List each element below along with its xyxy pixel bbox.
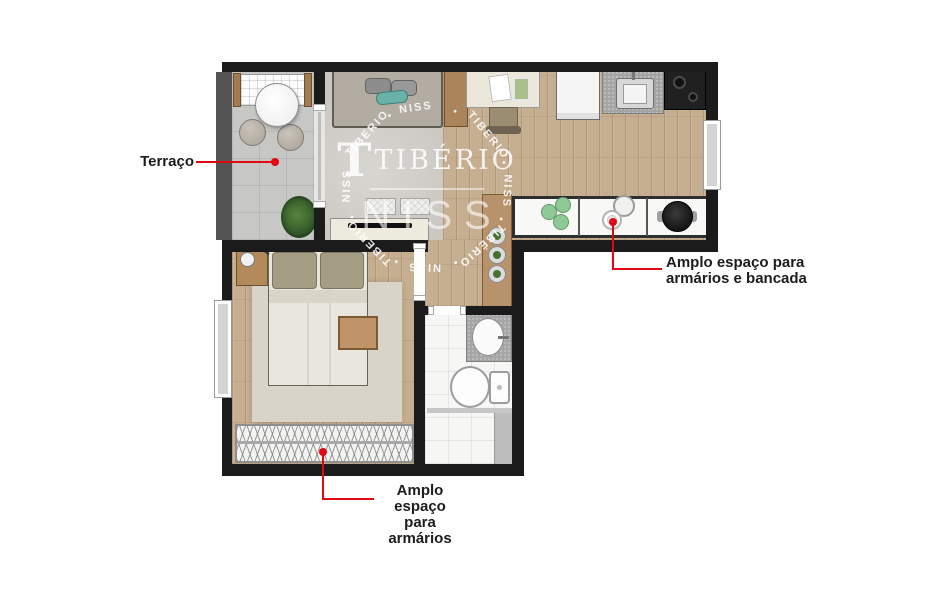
wardrobe-rail: [237, 441, 412, 444]
planter-right: [304, 73, 312, 107]
counter-leader-line-v: [612, 222, 614, 270]
terrace-leader-dot: [271, 158, 279, 166]
terrace-glass-door: [318, 112, 321, 200]
counter-leader-line-h: [612, 268, 662, 270]
bedroom-window: [214, 300, 232, 398]
counter-divider: [646, 198, 648, 236]
watermark-divider: [370, 188, 484, 190]
plant-icon: [493, 270, 501, 278]
sink-basin: [623, 84, 647, 104]
terrace-leader-line: [196, 161, 272, 163]
brand-name: TIBÉRIO: [374, 145, 516, 176]
door-jamb: [313, 201, 326, 208]
flush-button: [497, 385, 502, 390]
pillow: [320, 252, 364, 289]
wardrobe-leader-line-h: [322, 498, 374, 500]
wardrobe-leader-dot: [319, 448, 327, 456]
duvet-fold: [269, 290, 367, 303]
refrigerator: [556, 68, 600, 120]
terrace-label: Terraço: [96, 154, 194, 170]
terrace-chair-2: [277, 124, 304, 151]
wall-kitchen-bottom: [512, 240, 718, 252]
floor-plan: NISS•TIBERIO•NISS•TIBÉRIO•NISS•TIBERIO•N…: [0, 0, 950, 596]
terrace-table: [255, 83, 299, 127]
wardrobe-label: Amplo espaço para armários: [372, 483, 468, 547]
wall-right-lower: [512, 240, 524, 476]
notepad-icon: [513, 77, 530, 101]
door-jamb: [313, 104, 326, 111]
counter-label: Amplo espaço para armários e bancada: [666, 255, 807, 287]
burner-icon: [688, 92, 698, 102]
green-bowl-icon: [553, 214, 569, 230]
wall-top: [222, 62, 718, 72]
brand-t-icon: T: [337, 140, 371, 180]
toilet-bowl: [450, 366, 490, 408]
wall-bottom: [222, 464, 524, 476]
counter-leader-dot: [609, 218, 617, 226]
bath-faucet-icon: [498, 336, 509, 339]
plant-icon: [493, 251, 501, 259]
desk-chair-back: [486, 126, 521, 134]
kitchen-window: [703, 120, 721, 190]
watermark-subbrand: NISS: [361, 194, 502, 239]
bed-bench: [338, 316, 378, 350]
door-jamb: [460, 306, 466, 315]
pillow: [272, 252, 317, 289]
counter-label-line1: Amplo espaço para: [666, 255, 807, 271]
pot-icon: [662, 201, 693, 232]
terrace-railing: [216, 72, 232, 240]
burner-icon: [673, 76, 686, 89]
faucet-icon: [632, 71, 635, 80]
terrace-chair-1: [239, 119, 266, 146]
door-jamb: [428, 306, 434, 315]
watermark-logo: T TIBÉRIO: [337, 140, 517, 180]
potted-plant-icon: [281, 196, 317, 238]
cooktop: [664, 70, 706, 110]
green-bowl-icon: [555, 197, 571, 213]
planter-left: [233, 73, 241, 107]
wardrobe-label-line2: para armários: [372, 515, 468, 547]
lamp-icon: [240, 252, 255, 267]
counter-divider: [578, 198, 580, 236]
wall-mid-horizontal: [222, 240, 428, 252]
sideboard: [444, 70, 468, 127]
door-jamb: [413, 243, 426, 249]
door-jamb: [413, 295, 426, 301]
shower-ledge: [494, 413, 512, 464]
wardrobe-leader-line-v: [322, 452, 324, 500]
papers-icon: [488, 74, 511, 103]
counter-label-line2: armários e bancada: [666, 271, 807, 287]
wardrobe-label-line1: Amplo espaço: [372, 483, 468, 515]
bedroom-door-opening: [414, 244, 425, 300]
